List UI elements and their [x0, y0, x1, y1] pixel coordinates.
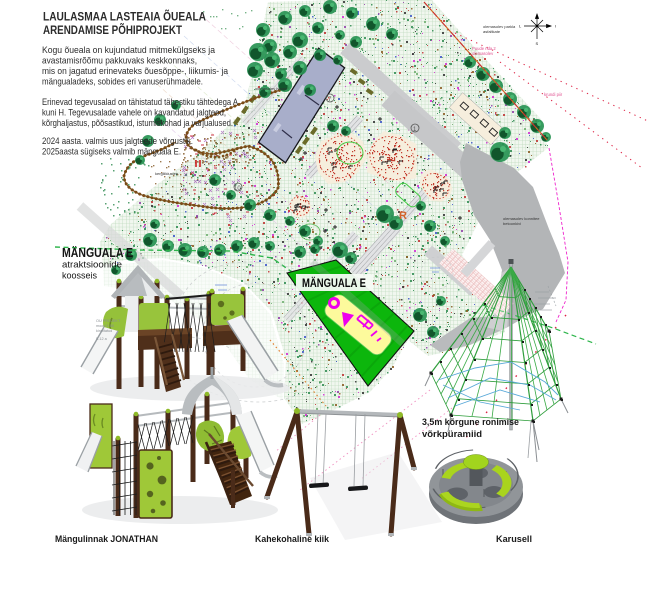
svg-text:MÄNGUALA E: MÄNGUALA E — [302, 277, 366, 290]
svg-text:koosseis: koosseis — [62, 271, 97, 281]
svg-text:kuni H. Tegevusalade vahele on: kuni H. Tegevusalade vahele on kavandatu… — [42, 107, 226, 118]
svg-text:olemasolev hoone: olemasolev hoone — [255, 86, 288, 91]
svg-text:I: I — [555, 24, 556, 29]
svg-text:võrkpüramiid: võrkpüramiid — [422, 429, 482, 440]
svg-text:kergliiklustee: kergliiklustee — [155, 171, 179, 176]
svg-text:Kahekohaline kiik: Kahekohaline kiik — [255, 534, 330, 545]
svg-text:2025aasta sügiseks valmib mäng: 2025aasta sügiseks valmib mänguala E. — [42, 146, 181, 157]
svg-text:avastamisrõõmu pakkuvaks keskk: avastamisrõõmu pakkuvaks keskkonnaks, — [42, 55, 197, 66]
svg-text:OU PROJEKT: OU PROJEKT — [96, 319, 121, 323]
svg-text:LAULASMAA LASTEAIA ÕUEALA: LAULASMAA LASTEAIA ÕUEALA — [43, 9, 206, 24]
svg-text:Kogu õueala on kujundatud mitm: Kogu õueala on kujundatud mitmekülgseks … — [42, 44, 216, 55]
svg-text:krundi piir: krundi piir — [544, 92, 563, 97]
svg-text:S: S — [536, 41, 539, 46]
svg-text:10: 10 — [234, 186, 241, 192]
svg-text:mis on jagatud erinevateks õue: mis on jagatud erinevateks õuesõppe-, li… — [42, 65, 229, 76]
svg-text:5-12 a: 5-12 a — [96, 337, 108, 341]
svg-text:R: R — [399, 210, 407, 222]
svg-text:mängualadeks, sobides eri vanu: mängualadeks, sobides eri vanuserühmadel… — [42, 76, 203, 87]
svg-text:Mängulinnak JONATHAN: Mängulinnak JONATHAN — [55, 534, 158, 545]
svg-text:kinnitatud: kinnitatud — [96, 329, 112, 333]
svg-text:kõrghaljastus, põõsastikud, is: kõrghaljastus, põõsastikud, istumiskohad… — [42, 117, 233, 128]
svg-text:ARENDAMISE PÕHIPROJEKT: ARENDAMISE PÕHIPROJEKT — [43, 22, 182, 37]
svg-text:Karusell: Karusell — [496, 534, 532, 545]
svg-text:atraktsioonide: atraktsioonide — [62, 260, 122, 270]
svg-text:2024 aasta. valmis uus jalgtee: 2024 aasta. valmis uus jalgteede võrgust… — [42, 135, 193, 146]
svg-text:Erinevad tegevusalad on tähist: Erinevad tegevusalad on tähistatud tähes… — [42, 96, 239, 107]
svg-text:MÄNGUALA E: MÄNGUALA E — [62, 245, 133, 260]
svg-text:asfaltkate: asfaltkate — [483, 29, 501, 34]
svg-text:olemasolev: olemasolev — [472, 51, 494, 56]
svg-text:betoonkivi: betoonkivi — [503, 221, 521, 226]
svg-text:mood 1:50: mood 1:50 — [96, 324, 114, 328]
svg-text:3,5m kõrgune ronimise: 3,5m kõrgune ronimise — [422, 417, 519, 428]
